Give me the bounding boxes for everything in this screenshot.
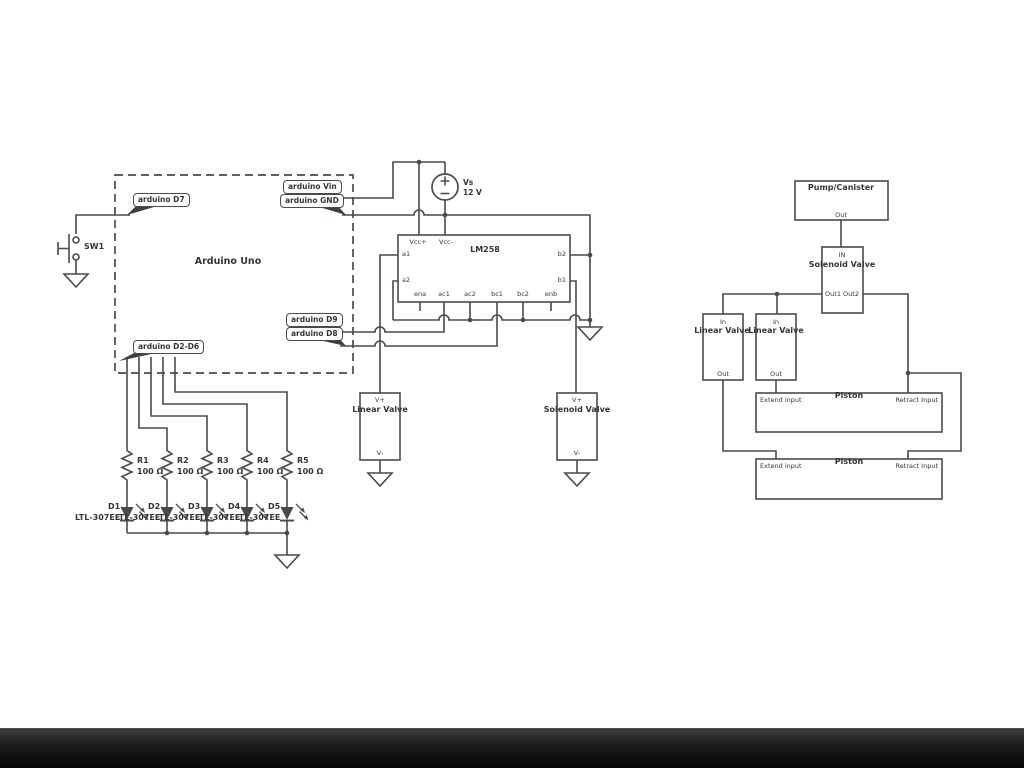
resistor-value: 100 Ω (257, 468, 283, 476)
pump-title: Pump/Canister (808, 184, 874, 192)
opamp-pin-a1: a1 (402, 251, 410, 258)
resistor-value: 100 Ω (217, 468, 243, 476)
resistor-value: 100 Ω (137, 468, 163, 476)
arduino-title: Arduino Uno (195, 257, 261, 267)
resistor-name: R4 (257, 457, 269, 465)
opamp-pin-ena: ena (414, 291, 426, 298)
pneumatic-valve-out1-pin: Out1 (825, 291, 841, 298)
pneumatic-valve-out2-pin: Out2 (843, 291, 859, 298)
piston-2-extend-pin: Extend input (760, 463, 802, 470)
linear-valve-1-title: Linear Valve (694, 327, 750, 335)
led-name: D2 (148, 503, 160, 511)
source-value: 12 V (463, 189, 482, 197)
callout-arduino-d7: arduino D7 (133, 193, 190, 207)
linear-valve-vplus: V+ (375, 397, 385, 404)
piston-2-retract-pin: Retract Input (896, 463, 938, 470)
led-part: LTL-307EE (235, 514, 280, 522)
schematic-page: arduino D7 arduino Vin arduino GND ardui… (0, 0, 1024, 768)
linear-valve-2-out-pin: Out (770, 371, 782, 378)
opamp-pin-bc1: bc1 (491, 291, 503, 298)
opamp-pin-b2: b2 (558, 251, 566, 258)
callout-arduino-vin: arduino Vin (283, 180, 342, 194)
led-part: LTL-307EE (155, 514, 200, 522)
resistor-value: 100 Ω (177, 468, 203, 476)
linear-valve-2-in-pin: In (773, 319, 779, 326)
resistor-value: 100 Ω (297, 468, 323, 476)
opamp-pin-ac2: ac2 (464, 291, 476, 298)
led-part: LTL-307EE (115, 514, 160, 522)
switch-label: SW1 (84, 243, 104, 251)
linear-valve-vminus: V- (377, 450, 383, 457)
resistor-symbols (122, 448, 292, 483)
callout-arduino-d2d6: arduino D2-D6 (133, 340, 204, 354)
opamp-title: LM258 (470, 246, 500, 254)
linear-valve-1-in-pin: In (720, 319, 726, 326)
piston-1-title: Piston (835, 392, 863, 400)
solenoid-valve-vplus: V+ (572, 397, 582, 404)
opamp-pin-ac1: ac1 (438, 291, 450, 298)
pneumatic-valve-title: Solenoid Valve (809, 261, 875, 269)
pushbutton-symbol (58, 234, 79, 263)
resistor-name: R2 (177, 457, 189, 465)
callout-arduino-d8: arduino D8 (286, 327, 343, 341)
callout-arduino-gnd: arduino GND (280, 194, 344, 208)
solenoid-valve-title: Solenoid Valve (544, 406, 610, 414)
pneumatic-valve-in-pin: IN (839, 252, 846, 259)
circuit-canvas (0, 0, 1024, 768)
opamp-pin-vcc-plus: Vcc+ (409, 239, 426, 246)
footer-bar: CIRCUIT LAB masg615 / wheelchair soccer … (0, 728, 1024, 768)
solenoid-valve-vminus: V- (574, 450, 580, 457)
opamp-pin-bc2: bc2 (517, 291, 529, 298)
led-name: D5 (268, 503, 280, 511)
resistor-name: R3 (217, 457, 229, 465)
opamp-pin-a2: a2 (402, 277, 410, 284)
source-name: Vs (463, 179, 473, 187)
resistor-name: R5 (297, 457, 309, 465)
piston-1-retract-pin: Retract Input (896, 397, 938, 404)
linear-valve-1-out-pin: Out (717, 371, 729, 378)
linear-valve-title: Linear Valve (352, 406, 408, 414)
callout-arduino-d9: arduino D9 (286, 313, 343, 327)
pump-out-pin: Out (835, 212, 847, 219)
led-part: LTL-307EE (195, 514, 240, 522)
led-name: D1 (108, 503, 120, 511)
led-part: LTL-307EE (75, 514, 120, 522)
opamp-pin-enb: enb (545, 291, 557, 298)
led-name: D3 (188, 503, 200, 511)
voltage-source-symbol (432, 174, 458, 200)
led-name: D4 (228, 503, 240, 511)
linear-valve-2-title: Linear Valve (748, 327, 804, 335)
opamp-pin-vcc-minus: Vcc- (439, 239, 453, 246)
piston-2-title: Piston (835, 458, 863, 466)
resistor-name: R1 (137, 457, 149, 465)
opamp-pin-b1: b1 (558, 277, 566, 284)
piston-1-extend-pin: Extend input (760, 397, 802, 404)
